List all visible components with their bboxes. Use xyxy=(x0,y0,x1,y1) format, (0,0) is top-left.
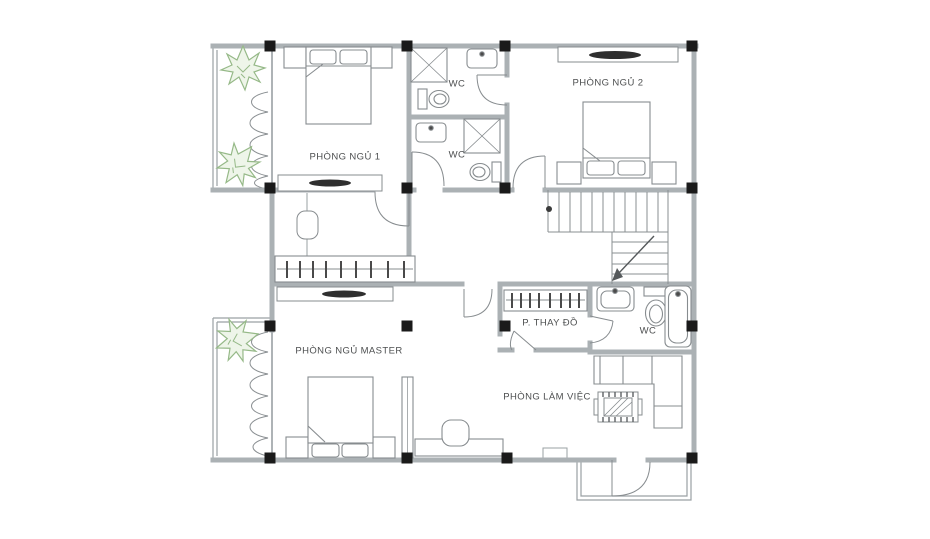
bathtub-icon xyxy=(665,286,691,347)
pillow xyxy=(312,444,339,457)
nightstand xyxy=(373,437,395,458)
toilet-icon xyxy=(470,162,501,182)
wc-right-fixtures xyxy=(597,286,691,347)
pillow xyxy=(618,161,645,175)
door-closet-area xyxy=(375,192,409,226)
pillow xyxy=(310,50,336,64)
door-bedroom2 xyxy=(513,156,545,188)
nightstand xyxy=(286,437,308,458)
pillow xyxy=(587,161,614,175)
window-console-bedroom2 xyxy=(558,47,678,62)
stair-direction-arrow xyxy=(546,206,654,281)
nightstand xyxy=(557,162,581,184)
room-label-wc-top: WC xyxy=(449,79,466,90)
plant-icon xyxy=(221,46,265,90)
bed-1 xyxy=(284,47,392,124)
door-wc-right xyxy=(590,316,613,343)
plant-icon xyxy=(210,313,264,367)
nightstand xyxy=(284,47,306,68)
sink-icon xyxy=(416,123,446,142)
vanity-chair xyxy=(297,211,318,239)
balcony-bottom-right xyxy=(577,460,691,500)
room-label-wc-right: WC xyxy=(640,326,657,337)
toilet-icon xyxy=(644,287,668,326)
floor-plan-canvas: PHÒNG NGỦ 1 WC WC PHÒNG NGỦ 2 PHÒNG NGỦ … xyxy=(0,0,930,539)
nightstand xyxy=(652,162,676,184)
sink-icon xyxy=(467,49,497,68)
bed-2 xyxy=(557,102,676,184)
plant-icon xyxy=(207,133,269,195)
door-balcony-office xyxy=(612,460,650,496)
door-dressing xyxy=(510,331,536,350)
bed-master xyxy=(286,377,395,458)
desk-chair xyxy=(442,420,469,446)
wardrobe-closet xyxy=(275,256,415,282)
door-master-hall xyxy=(464,289,492,317)
desk xyxy=(402,377,503,458)
console-decor xyxy=(589,51,641,59)
shower-icon xyxy=(464,119,500,153)
console-table xyxy=(278,175,382,191)
closet-area xyxy=(297,193,318,257)
console-decor xyxy=(309,180,351,187)
shower-icon xyxy=(411,48,447,82)
staircase xyxy=(548,190,668,284)
sink-icon xyxy=(597,287,634,311)
stair-start-dot xyxy=(546,206,552,212)
room-label-phong-lam-viec: PHÒNG LÀM VIỆC xyxy=(503,392,590,403)
room-label-phong-ngu-2: PHÒNG NGỦ 2 xyxy=(573,78,644,89)
room-label-wc-mid: WC xyxy=(449,150,466,161)
room-label-phong-ngu-1: PHÒNG NGỦ 1 xyxy=(310,152,381,163)
dressing-rack xyxy=(504,290,587,311)
toilet-icon xyxy=(418,89,449,109)
door-wc-mid xyxy=(412,152,444,186)
console-table xyxy=(277,287,393,301)
pillow xyxy=(342,444,368,457)
console-decor xyxy=(322,291,366,298)
bed-body xyxy=(308,377,373,443)
coffee-table xyxy=(594,392,642,422)
door-wc-top xyxy=(477,75,507,105)
pillow xyxy=(340,50,367,64)
room-label-p-thay-do: P. THAY ĐỒ xyxy=(522,318,578,329)
nightstand xyxy=(368,47,392,68)
room-label-phong-ngu-master: PHÒNG NGỦ MASTER xyxy=(295,346,402,357)
